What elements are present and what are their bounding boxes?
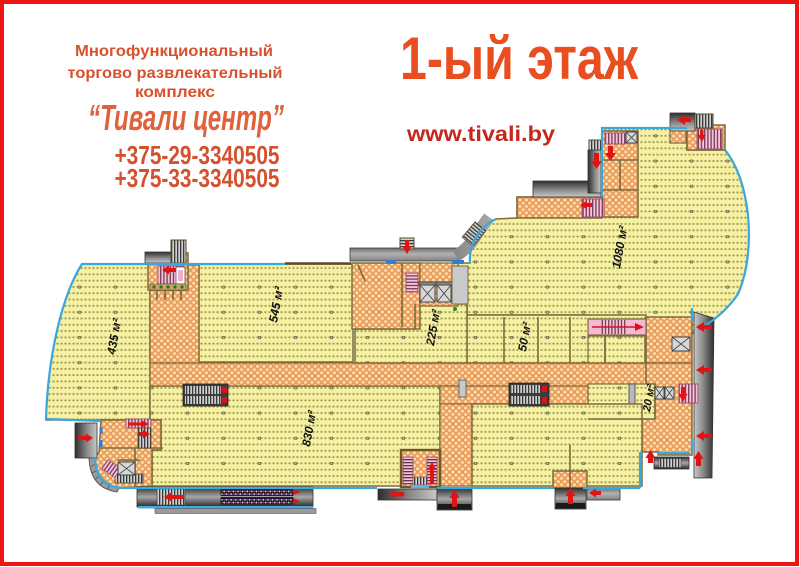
svg-text:1-ый этаж: 1-ый этаж	[400, 25, 639, 92]
svg-text:“Тивали центр”: “Тивали центр”	[88, 97, 284, 138]
svg-text:торгово развлекательный: торгово развлекательный	[68, 65, 283, 82]
svg-text:Многофункциональный: Многофункциональный	[75, 43, 273, 60]
svg-text:+375-33-3340505: +375-33-3340505	[115, 163, 280, 193]
svg-text:www.tivali.by: www.tivali.by	[406, 123, 555, 146]
